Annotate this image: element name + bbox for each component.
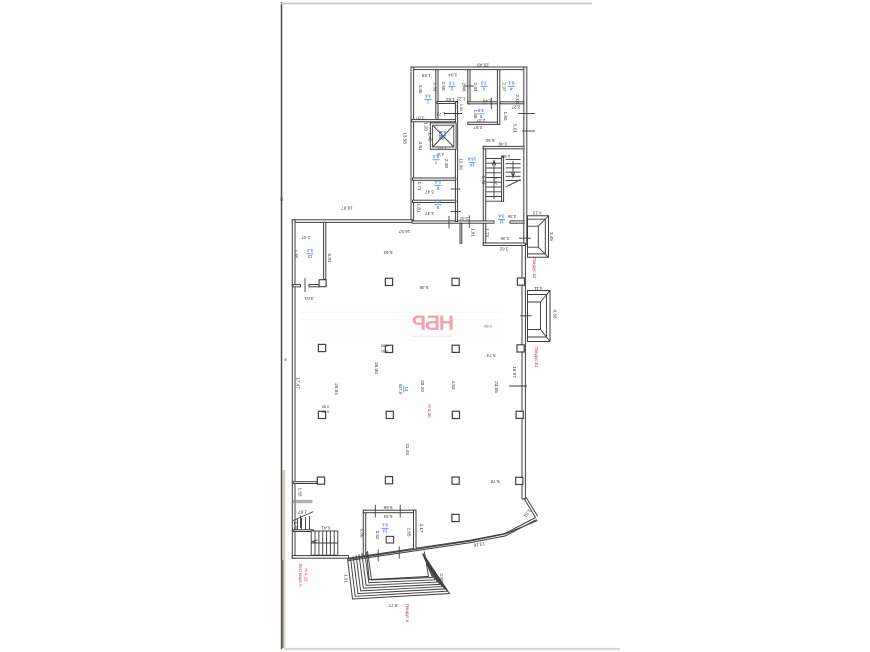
- svg-text:5.74: 5.74: [486, 353, 495, 358]
- svg-text:1.72: 1.72: [436, 112, 445, 117]
- svg-text:3.17: 3.17: [419, 524, 424, 533]
- svg-text:3.9: 3.9: [477, 108, 483, 113]
- svg-text:2.02: 2.02: [438, 146, 447, 151]
- svg-text:2.49: 2.49: [482, 99, 491, 104]
- svg-text:1.73: 1.73: [485, 228, 490, 237]
- svg-text:16.57: 16.57: [398, 229, 410, 234]
- svg-text:3.4: 3.4: [498, 214, 504, 219]
- svg-text:5.2: 5.2: [306, 248, 312, 253]
- svg-text:2.27: 2.27: [511, 105, 520, 110]
- svg-text:13.58: 13.58: [403, 132, 408, 144]
- svg-text:1.85: 1.85: [294, 250, 299, 259]
- svg-text:1.20: 1.20: [424, 122, 429, 131]
- svg-text:18.97: 18.97: [512, 366, 517, 378]
- svg-text:2.94: 2.94: [473, 83, 478, 92]
- svg-text:6.3: 6.3: [434, 199, 440, 204]
- svg-text:6.72: 6.72: [481, 176, 486, 185]
- svg-text:3.87: 3.87: [415, 116, 424, 121]
- svg-text:1.71: 1.71: [417, 182, 422, 191]
- svg-text:2.83: 2.83: [439, 574, 444, 583]
- svg-text:6.34: 6.34: [383, 514, 392, 519]
- svg-text:5.45: 5.45: [419, 285, 428, 290]
- svg-text:3.86: 3.86: [359, 529, 364, 538]
- svg-text:2.10: 2.10: [515, 95, 520, 104]
- svg-text:13: 13: [382, 529, 387, 534]
- svg-text:0.50: 0.50: [380, 349, 388, 354]
- svg-text:12.36: 12.36: [459, 158, 464, 170]
- svg-text:527.8: 527.8: [398, 384, 403, 395]
- svg-text:Н-4.12: Н-4.12: [304, 568, 309, 582]
- svg-text:0.50: 0.50: [321, 410, 329, 415]
- svg-text:10: 10: [469, 163, 474, 168]
- svg-text:1.55: 1.55: [297, 488, 302, 497]
- svg-text:Н-3.40: Н-3.40: [427, 404, 432, 418]
- svg-text:Пандус в: Пандус в: [405, 604, 410, 623]
- svg-text:3.52: 3.52: [375, 531, 380, 540]
- svg-text:3.36: 3.36: [500, 236, 509, 241]
- svg-text:2.45: 2.45: [427, 133, 432, 142]
- svg-text:4.11: 4.11: [534, 286, 543, 291]
- svg-text:18.87: 18.87: [341, 206, 353, 211]
- svg-text:1.59: 1.59: [421, 73, 430, 78]
- svg-text:Р: Р: [412, 312, 426, 335]
- svg-text:1.82: 1.82: [446, 97, 455, 102]
- svg-text:6.41: 6.41: [321, 526, 330, 531]
- svg-text:13.9: 13.9: [467, 157, 476, 162]
- svg-text:3.47: 3.47: [425, 211, 434, 216]
- svg-text:29.84: 29.84: [334, 383, 339, 395]
- svg-text:14: 14: [404, 387, 409, 392]
- svg-text:4.81: 4.81: [418, 142, 423, 151]
- svg-text:1.81: 1.81: [470, 228, 475, 237]
- svg-text:4.13: 4.13: [532, 211, 541, 216]
- svg-text:29.20: 29.20: [420, 380, 425, 392]
- svg-text:3.47: 3.47: [425, 190, 434, 195]
- svg-text:Городская недвижимость: Городская недвижимость: [413, 334, 452, 338]
- svg-text:5.8: 5.8: [439, 130, 445, 135]
- svg-text:3.62: 3.62: [499, 246, 508, 251]
- svg-text:1.90: 1.90: [459, 104, 464, 112]
- svg-text:17.47: 17.47: [295, 377, 300, 389]
- svg-text:3.6: 3.6: [424, 94, 430, 99]
- svg-text:1.60: 1.60: [503, 112, 508, 121]
- svg-text:5.01: 5.01: [512, 124, 517, 133]
- svg-text:3.45: 3.45: [549, 232, 554, 241]
- svg-text:3.49: 3.49: [498, 142, 507, 147]
- svg-text:0.58: 0.58: [381, 344, 389, 349]
- svg-text:9.1: 9.1: [381, 523, 387, 528]
- svg-text:23.06: 23.06: [494, 381, 499, 393]
- svg-text:11: 11: [499, 220, 504, 225]
- svg-text:2.18: 2.18: [437, 152, 445, 157]
- svg-text:4.45: 4.45: [418, 85, 423, 94]
- svg-text:Пандус в1: Пандус в1: [534, 347, 539, 368]
- svg-text:1.91: 1.91: [343, 574, 348, 583]
- svg-text:3.04: 3.04: [448, 73, 457, 78]
- svg-text:5.91: 5.91: [327, 254, 332, 263]
- svg-text:2.47: 2.47: [301, 235, 310, 240]
- svg-text:2.56: 2.56: [501, 154, 510, 159]
- svg-text:2.97: 2.97: [501, 83, 506, 92]
- svg-text:7.5: 7.5: [448, 81, 454, 86]
- svg-text:1.81: 1.81: [417, 204, 422, 213]
- svg-text:2.38: 2.38: [444, 159, 449, 168]
- svg-text:1.43: 1.43: [293, 522, 298, 531]
- svg-text:2.47: 2.47: [459, 216, 468, 221]
- svg-text:2.85: 2.85: [406, 528, 411, 537]
- svg-text:21.43: 21.43: [405, 443, 410, 455]
- svg-text:3.36: 3.36: [507, 214, 516, 219]
- svg-text:6.1: 6.1: [508, 81, 514, 86]
- svg-text:1.44: 1.44: [454, 101, 459, 109]
- svg-text:0.58: 0.58: [322, 405, 330, 410]
- svg-text:Пандус в2: Пандус в2: [532, 258, 537, 279]
- svg-text:8.77: 8.77: [388, 603, 397, 608]
- svg-text:1.58: 1.58: [473, 110, 478, 119]
- svg-text:12: 12: [307, 254, 312, 259]
- svg-text:5.66: 5.66: [383, 505, 392, 510]
- svg-text:5.78: 5.78: [490, 479, 499, 484]
- svg-text:26.00: 26.00: [374, 362, 379, 374]
- svg-text:2.58: 2.58: [441, 82, 446, 91]
- svg-text:20.49: 20.49: [477, 63, 489, 68]
- svg-text:4.53: 4.53: [451, 381, 456, 390]
- svg-text:2.33: 2.33: [432, 83, 437, 92]
- svg-text:5.92: 5.92: [383, 250, 392, 255]
- svg-text:Б: Б: [425, 312, 440, 335]
- svg-text:7.3: 7.3: [480, 81, 486, 86]
- svg-text:Н: Н: [439, 312, 454, 335]
- svg-text:5.9: 5.9: [434, 180, 440, 185]
- svg-text:2.57: 2.57: [473, 125, 482, 130]
- svg-text:3.01: 3.01: [304, 296, 313, 301]
- svg-text:2.48: 2.48: [461, 83, 466, 92]
- svg-text:4.33: 4.33: [552, 310, 557, 319]
- svg-text:Лестница А: Лестница А: [298, 563, 303, 587]
- svg-text:1.47: 1.47: [494, 177, 499, 185]
- svg-text:1.87: 1.87: [298, 510, 307, 515]
- svg-text:6.50: 6.50: [485, 138, 494, 143]
